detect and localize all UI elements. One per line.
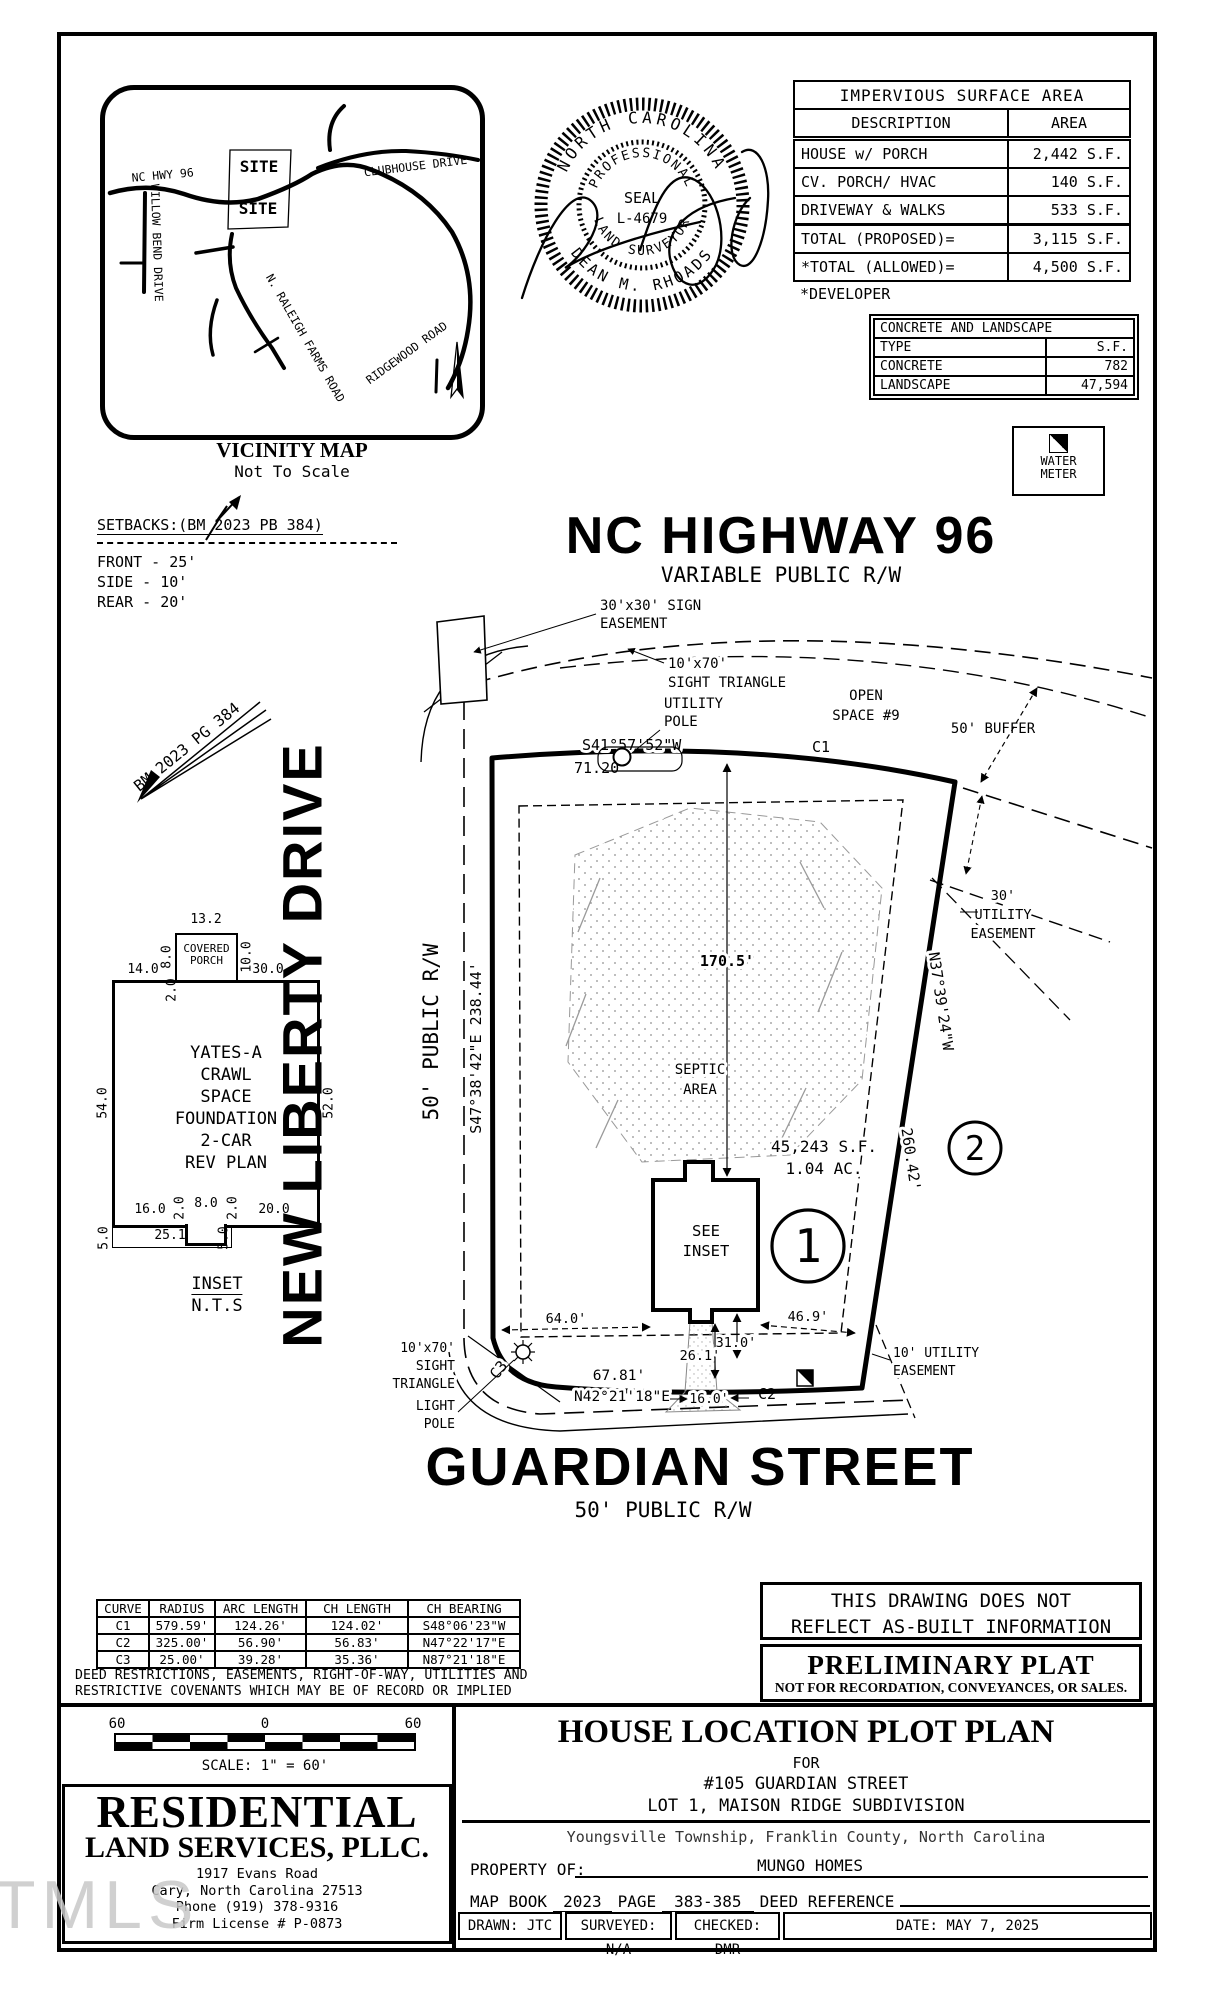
titleblock-rule bbox=[462, 1820, 1150, 1823]
table-row: HOUSE w/ PORCH2,442 S.F. bbox=[794, 139, 1130, 169]
concrete-table-frame: CONCRETE AND LANDSCAPE TYPE S.F. CONCRET… bbox=[869, 314, 1139, 400]
tmls-watermark: TMLS bbox=[0, 1866, 199, 1944]
inset-dim: 52.0 bbox=[322, 1087, 337, 1118]
inset-caption: INSET bbox=[191, 1274, 242, 1295]
as-built-disclaimer: THIS DRAWING DOES NOT REFLECT AS-BUILT I… bbox=[760, 1582, 1142, 1640]
highway-rw: VARIABLE PUBLIC R/W bbox=[661, 563, 901, 587]
setbacks-divider bbox=[97, 542, 397, 544]
table-row: C325.00'39.28'35.36'N87°21'18"E bbox=[97, 1651, 520, 1668]
guardian-name: GUARDIAN STREET bbox=[425, 1436, 974, 1498]
inset-dim: 54.0 bbox=[96, 1087, 111, 1118]
table-row: CURVE RADIUS ARC LENGTH CH LENGTH CH BEA… bbox=[97, 1600, 520, 1617]
table-row: *TOTAL (ALLOWED)=4,500 S.F. bbox=[794, 253, 1130, 281]
plot-plan-sheet: NC HWY 96 WILLOW BEND DRIVE CLUBHOUSE DR… bbox=[0, 0, 1214, 2000]
inset-dim: 2.0 bbox=[165, 978, 180, 1001]
inset-dim: 20.0 bbox=[258, 1202, 289, 1217]
footer-surveyed: SURVEYED: N/A bbox=[565, 1912, 672, 1940]
highway-name: NC HIGHWAY 96 bbox=[566, 506, 997, 566]
impervious-surface-table: IMPERVIOUS SURFACE AREA DESCRIPTION AREA… bbox=[793, 80, 1131, 282]
inset-covered-porch: COVERED PORCH bbox=[175, 933, 238, 983]
titleblock-address: #105 GUARDIAN STREET bbox=[704, 1774, 909, 1794]
titleblock-township: Youngsville Township, Franklin County, N… bbox=[567, 1828, 1046, 1846]
map-book-row: MAP BOOK 2023 PAGE 383-385 DEED REFERENC… bbox=[470, 1892, 1150, 1912]
vicinity-map-box bbox=[100, 85, 485, 440]
table-row: DRIVEWAY & WALKS533 S.F. bbox=[794, 196, 1130, 225]
deed-note: DEED RESTRICTIONS, EASEMENTS, RIGHT-OF-W… bbox=[75, 1668, 528, 1700]
footer-checked: CHECKED: DMR bbox=[675, 1912, 780, 1940]
inset-dim: 8.0 bbox=[194, 1196, 217, 1211]
table-row: C1579.59'124.26'124.02'S48°06'23"W bbox=[97, 1617, 520, 1634]
column-header: S.F. bbox=[1046, 338, 1134, 357]
inset-dim: 8.0 bbox=[160, 945, 175, 968]
divider-horizontal bbox=[57, 1703, 1157, 1707]
titleblock-for: FOR bbox=[792, 1754, 819, 1772]
inset-dim: 16.0 bbox=[134, 1202, 165, 1217]
water-meter-icon bbox=[1049, 434, 1068, 453]
footer-date: DATE: MAY 7, 2025 bbox=[783, 1912, 1152, 1940]
vicinity-map-subtitle: Not To Scale bbox=[234, 462, 350, 481]
inset-dim: 14.0 bbox=[127, 962, 158, 977]
page-label: PAGE bbox=[618, 1892, 657, 1911]
water-meter-legend: WATER METER bbox=[1012, 426, 1105, 496]
divider-vertical bbox=[452, 1703, 456, 1952]
inset-dim: 30.0 bbox=[252, 962, 283, 977]
deed-reference-blank bbox=[900, 1905, 1150, 1907]
developer-footnote: *DEVELOPER bbox=[800, 285, 890, 303]
map-book-label: MAP BOOK bbox=[470, 1892, 547, 1911]
table-row: TOTAL (PROPOSED)=3,115 S.F. bbox=[794, 225, 1130, 254]
firm-name-1: RESIDENTIAL bbox=[65, 1791, 449, 1833]
firm-name-2: LAND SERVICES, PLLC. bbox=[65, 1833, 449, 1863]
page-value: 383-385 bbox=[662, 1892, 753, 1912]
titleblock-title: HOUSE LOCATION PLOT PLAN bbox=[558, 1714, 1055, 1751]
column-header: DESCRIPTION bbox=[794, 109, 1008, 139]
table-row: LANDSCAPE47,594 bbox=[874, 376, 1134, 395]
inset-plan-name: YATES-ACRAWLSPACE FOUNDATION2-CARREV PLA… bbox=[175, 1042, 277, 1174]
inset-dim: 2.0 bbox=[173, 1196, 188, 1219]
column-header: TYPE bbox=[874, 338, 1046, 357]
titleblock-lot: LOT 1, MAISON RIDGE SUBDIVISION bbox=[647, 1796, 964, 1816]
table-title: IMPERVIOUS SURFACE AREA bbox=[794, 81, 1130, 109]
table-row: CONCRETE782 bbox=[874, 357, 1134, 376]
setback-side: SIDE - 10' bbox=[97, 573, 187, 591]
property-of-label: PROPERTY OF: bbox=[470, 1860, 586, 1879]
table-row: CV. PORCH/ HVAC140 S.F. bbox=[794, 168, 1130, 196]
setback-front: FRONT - 25' bbox=[97, 553, 196, 571]
setback-rear: REAR - 20' bbox=[97, 593, 187, 611]
legend-label: METER bbox=[1014, 468, 1103, 481]
inset-dim: 5.0 bbox=[217, 1226, 232, 1249]
inset-caption-nts: N.T.S bbox=[191, 1296, 242, 1316]
property-of-line bbox=[575, 1876, 1148, 1878]
preliminary-plat-stamp: PRELIMINARY PLAT NOT FOR RECORDATION, CO… bbox=[760, 1644, 1142, 1702]
setbacks-title: SETBACKS:(BM 2023 PB 384) bbox=[97, 516, 323, 535]
inset-dim: 13.2 bbox=[190, 912, 221, 927]
new-liberty-rw: 50' PUBLIC R/W bbox=[419, 943, 443, 1120]
vicinity-map-title: VICINITY MAP bbox=[216, 438, 367, 463]
inset-dim: 25.1 bbox=[154, 1228, 185, 1243]
curve-table: CURVE RADIUS ARC LENGTH CH LENGTH CH BEA… bbox=[96, 1599, 521, 1669]
preliminary-subtitle: NOT FOR RECORDATION, CONVEYANCES, OR SAL… bbox=[763, 1680, 1139, 1696]
map-book-value: 2023 bbox=[553, 1892, 612, 1912]
inset-dim: 2.0 bbox=[226, 1196, 241, 1219]
footer-drawn: DRAWN: JTC bbox=[458, 1912, 562, 1940]
property-of-value: MUNGO HOMES bbox=[757, 1856, 863, 1875]
deed-reference-label: DEED REFERENCE bbox=[760, 1892, 895, 1911]
column-header: AREA bbox=[1008, 109, 1130, 139]
table-row: C2325.00'56.90'56.83'N47°22'17"E bbox=[97, 1634, 520, 1651]
table-title: CONCRETE AND LANDSCAPE bbox=[874, 319, 1134, 338]
scale-caption: SCALE: 1" = 60' bbox=[202, 1758, 328, 1774]
guardian-rw: 50' PUBLIC R/W bbox=[574, 1498, 751, 1522]
preliminary-title: PRELIMINARY PLAT bbox=[763, 1650, 1139, 1680]
inset-dim: 5.0 bbox=[97, 1226, 112, 1249]
